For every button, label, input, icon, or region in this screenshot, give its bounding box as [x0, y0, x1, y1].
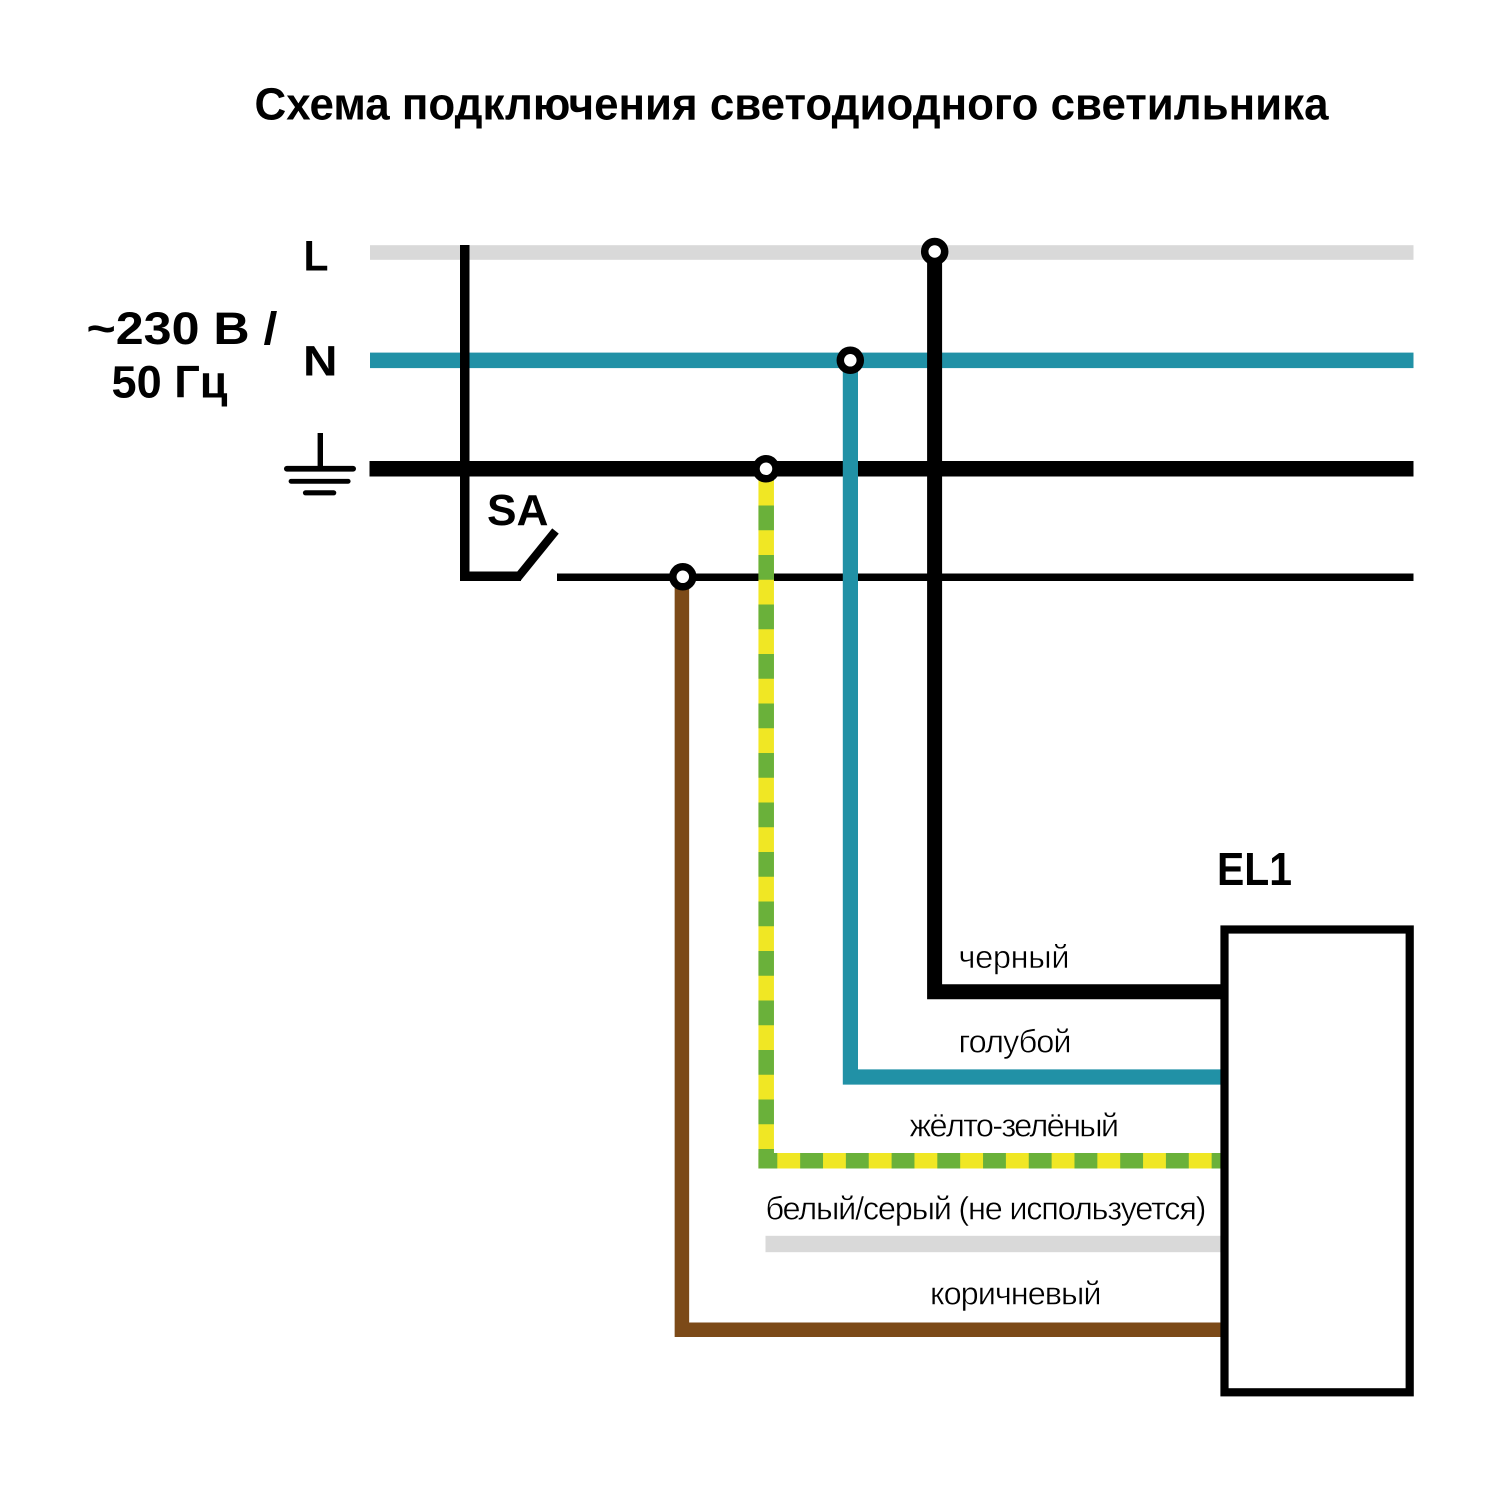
svg-text:коричневый: коричневый: [930, 1275, 1102, 1311]
svg-text:белый/серый (не используется): белый/серый (не используется): [766, 1191, 1207, 1227]
svg-text:L: L: [304, 233, 329, 281]
svg-text:EL1: EL1: [1217, 843, 1292, 895]
svg-text:~230 В /: ~230 В /: [87, 303, 279, 354]
svg-text:Схема подключения светодиодног: Схема подключения светодиодного светильн…: [255, 78, 1330, 129]
svg-text:жёлто-зелёный: жёлто-зелёный: [910, 1108, 1120, 1144]
svg-text:N: N: [303, 338, 338, 386]
svg-text:SA: SA: [487, 486, 549, 535]
svg-text:черный: черный: [959, 939, 1070, 975]
svg-text:голубой: голубой: [959, 1023, 1072, 1059]
svg-text:50 Гц: 50 Гц: [112, 356, 228, 407]
